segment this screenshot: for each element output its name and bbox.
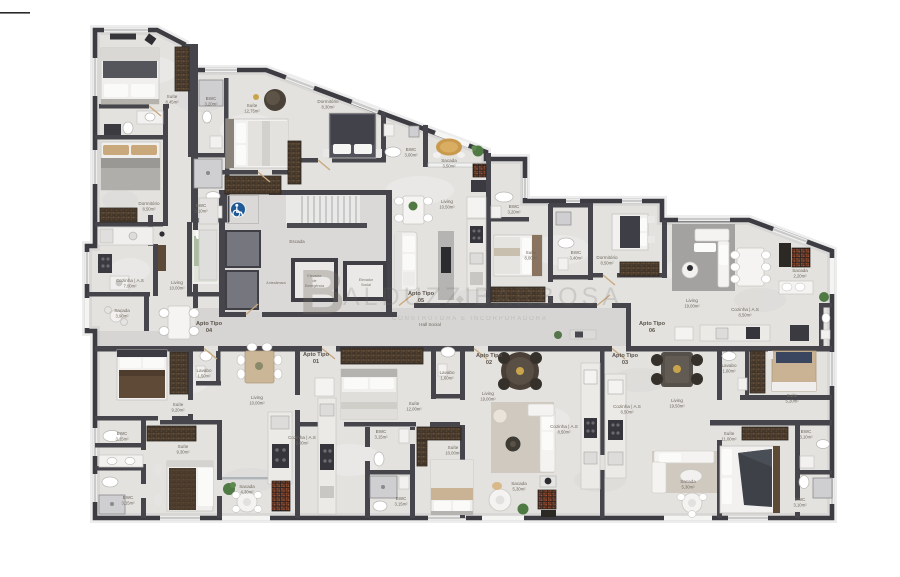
svg-text:19,00m²: 19,00m² [684, 304, 700, 309]
svg-text:BWC: BWC [801, 429, 812, 434]
svg-text:Living: Living [686, 298, 698, 303]
svg-text:Sacada: Sacada [441, 158, 457, 163]
svg-text:Elevador: Elevador [359, 278, 374, 282]
svg-text:Apto Tipo: Apto Tipo [196, 321, 223, 327]
svg-text:Apto Tipo: Apto Tipo [612, 353, 639, 359]
svg-text:3,15m²: 3,15m² [115, 437, 129, 442]
svg-text:1,60m²: 1,60m² [722, 369, 736, 374]
svg-text:BWC: BWC [396, 496, 407, 501]
svg-text:3,20m²: 3,20m² [204, 102, 218, 107]
svg-text:Cozinha | A.S: Cozinha | A.S [731, 307, 759, 312]
svg-text:BWC: BWC [509, 204, 520, 209]
svg-text:11,00m²: 11,00m² [721, 437, 737, 442]
svg-text:Suíte: Suíte [787, 393, 798, 398]
svg-text:Suíte: Suíte [167, 94, 178, 99]
svg-text:Living: Living [171, 280, 183, 285]
svg-text:BWC: BWC [571, 250, 582, 255]
svg-text:Suíte: Suíte [409, 401, 420, 406]
svg-text:03: 03 [622, 360, 628, 366]
svg-text:BARBOSA: BARBOSA [474, 283, 623, 311]
svg-text:3,15m²: 3,15m² [374, 435, 388, 440]
svg-text:Lavabo: Lavabo [721, 363, 737, 368]
svg-text:Living: Living [671, 398, 683, 403]
svg-text:8,00m²: 8,00m² [524, 256, 538, 261]
svg-text:B: B [299, 256, 345, 328]
svg-text:3,10m²: 3,10m² [799, 435, 813, 440]
svg-text:BWC: BWC [123, 495, 134, 500]
svg-text:Suíte: Suíte [173, 402, 184, 407]
svg-text:3,00m²: 3,00m² [404, 153, 418, 158]
svg-text:2,20m²: 2,20m² [793, 274, 807, 279]
svg-text:Antecâmara: Antecâmara [266, 281, 285, 285]
svg-text:BWC: BWC [795, 497, 806, 502]
svg-text:Cozinha | A.S: Cozinha | A.S [550, 424, 578, 429]
svg-text:4,30m²: 4,30m² [240, 490, 254, 495]
svg-text:5,30m²: 5,30m² [681, 485, 695, 490]
svg-text:8,50m²: 8,50m² [738, 313, 752, 318]
svg-text:8,30m²: 8,30m² [321, 105, 335, 110]
svg-text:CONSTRUTORA E INCORPORADORA: CONSTRUTORA E INCORPORADORA [392, 316, 548, 322]
svg-text:1,60m²: 1,60m² [440, 376, 454, 381]
svg-text:12,75m²: 12,75m² [244, 109, 260, 114]
svg-text:Dormitório: Dormitório [138, 201, 160, 206]
svg-text:3,10m²: 3,10m² [793, 503, 807, 508]
svg-text:BWC: BWC [206, 96, 217, 101]
svg-text:3,50m²: 3,50m² [442, 164, 456, 169]
svg-text:Escada: Escada [289, 239, 305, 244]
svg-text:Cozinha | A.S: Cozinha | A.S [613, 404, 641, 409]
svg-text:8,50m²: 8,50m² [620, 410, 634, 415]
svg-text:10,00m²: 10,00m² [249, 401, 265, 406]
svg-text:Dormitório: Dormitório [596, 255, 618, 260]
svg-text:Cozinha | A.S: Cozinha | A.S [116, 278, 144, 283]
svg-text:Sacada: Sacada [511, 481, 527, 486]
svg-text:10,50m²: 10,50m² [439, 205, 455, 210]
svg-text:BWC: BWC [376, 429, 387, 434]
svg-text:8,50m²: 8,50m² [142, 207, 156, 212]
svg-text:04: 04 [206, 328, 213, 334]
svg-text:3,90m²: 3,90m² [115, 314, 129, 319]
svg-text:BWC: BWC [406, 147, 417, 152]
svg-text:8,45m²: 8,45m² [165, 100, 179, 105]
svg-text:Living: Living [441, 199, 453, 204]
svg-text:06: 06 [649, 328, 655, 334]
svg-text:Hall Social: Hall Social [419, 322, 441, 327]
svg-text:3,15m²: 3,15m² [394, 502, 408, 507]
svg-text:Apto Tipo: Apto Tipo [476, 353, 503, 359]
svg-text:Dormitório: Dormitório [317, 99, 339, 104]
svg-text:Living: Living [251, 395, 263, 400]
svg-text:12,00m²: 12,00m² [406, 407, 422, 412]
svg-text:5,20m²: 5,20m² [785, 399, 799, 404]
svg-text:Apto Tipo: Apto Tipo [639, 321, 666, 327]
svg-text:02: 02 [486, 360, 492, 366]
svg-text:Apto Tipo: Apto Tipo [303, 352, 330, 358]
svg-text:Sacada: Sacada [239, 484, 255, 489]
svg-text:8,50m²: 8,50m² [557, 430, 571, 435]
svg-text:Suíte: Suíte [247, 103, 258, 108]
svg-text:Sacada: Sacada [680, 479, 696, 484]
svg-text:Lavabo: Lavabo [196, 368, 212, 373]
svg-text:BWC: BWC [196, 203, 207, 208]
svg-text:8,50m²: 8,50m² [600, 261, 614, 266]
svg-text:Lavabo: Lavabo [439, 370, 455, 375]
svg-text:9,20m²: 9,20m² [171, 408, 185, 413]
svg-text:7,00m²: 7,00m² [123, 284, 137, 289]
svg-text:◆: ◆ [455, 294, 464, 305]
svg-text:Suíte: Suíte [526, 250, 537, 255]
svg-text:Cozinha | A.S: Cozinha | A.S [288, 435, 316, 440]
svg-text:Living: Living [482, 391, 494, 396]
svg-text:3,40m²: 3,40m² [569, 256, 583, 261]
svg-text:BWC: BWC [117, 431, 128, 436]
svg-text:3,15m²: 3,15m² [121, 501, 135, 506]
svg-text:9,30m²: 9,30m² [176, 450, 190, 455]
svg-text:3,10m²: 3,10m² [194, 209, 208, 214]
svg-text:19,00m²: 19,00m² [480, 397, 496, 402]
svg-text:9,00m²: 9,00m² [295, 441, 309, 446]
svg-text:3,20m²: 3,20m² [507, 210, 521, 215]
svg-text:Suíte: Suíte [178, 444, 189, 449]
svg-text:5,30m²: 5,30m² [512, 487, 526, 492]
svg-text:19,50m²: 19,50m² [669, 404, 685, 409]
svg-text:10,00m²: 10,00m² [445, 451, 461, 456]
svg-text:1,50m²: 1,50m² [197, 374, 211, 379]
svg-text:Suíte: Suíte [724, 431, 735, 436]
svg-text:Suíte: Suíte [448, 445, 459, 450]
svg-text:10,00m²: 10,00m² [169, 286, 185, 291]
svg-text:01: 01 [313, 359, 319, 365]
svg-text:Sacada: Sacada [114, 308, 130, 313]
svg-text:Sacada: Sacada [792, 268, 808, 273]
